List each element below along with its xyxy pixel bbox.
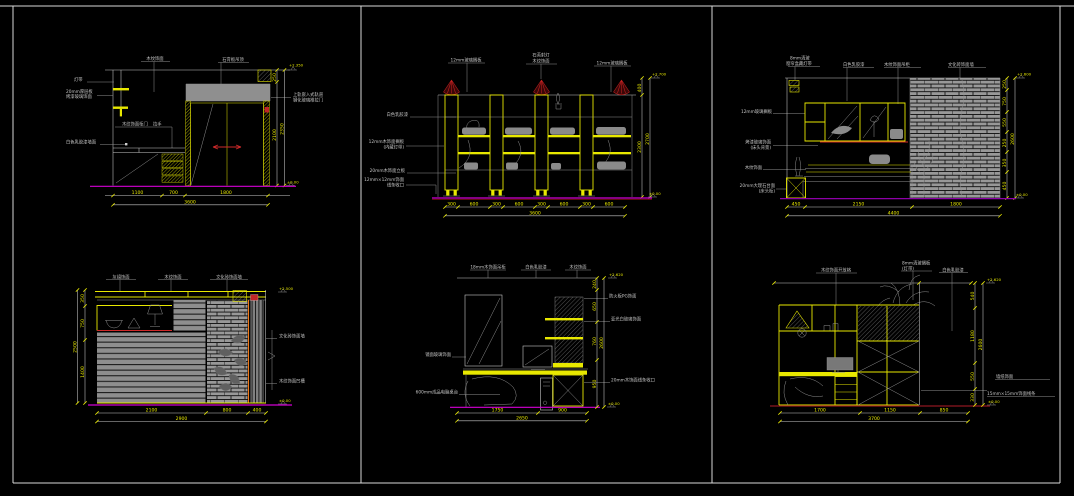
dimension-value: 1180 [970, 330, 976, 342]
annotation-label: 600mm成品电脑桌台 [416, 389, 458, 396]
level-mark: ±0.00 [287, 179, 299, 184]
dimension-total: 2650 [516, 415, 528, 421]
dimension-value: 400 [253, 408, 262, 414]
shelf-decor-items [459, 93, 626, 170]
dimension-total: 3600 [184, 199, 196, 205]
dimension-total: 4400 [888, 210, 900, 216]
dimension-total: 2500 [72, 341, 78, 353]
annotation-label: 木纹饰面凹槽 [279, 378, 305, 385]
annotation-label: 石英射灯 [532, 52, 550, 59]
annotation-label: 20mm木饰面线条收口 [611, 377, 655, 384]
monitor [827, 358, 853, 371]
level-mark-icon [286, 67, 297, 186]
slat-wall-upper [174, 300, 206, 331]
dimension-value: 550 [970, 372, 976, 381]
dimension-value: 1100 [132, 190, 144, 196]
annotation-label: 亚光白玻璃饰面 [611, 316, 642, 323]
dimension-value: 2300 [637, 141, 643, 153]
ceiling-detail-box [258, 70, 271, 82]
brick-column [207, 300, 248, 403]
dimension-value: 750 [1002, 97, 1008, 106]
annotation-label: 防火板PG饰面 [609, 293, 637, 300]
annotation-label: 木纹饰面吊柜 [884, 61, 910, 68]
curtain-box [790, 87, 799, 92]
annotation-label: 8mm清玻 [790, 55, 810, 62]
annotation-label: (床头柜) [759, 188, 776, 195]
dimension-value: 550 [1002, 118, 1008, 127]
dimension-value: 800 [223, 408, 232, 414]
dimension-value: 300 [492, 202, 501, 208]
dimension-total: 2600 [978, 339, 984, 351]
dimensions-right: 540 1180 550 330 2600 [970, 281, 985, 406]
elevation-panel-2: 400 2300 2700 +2.700 ±0.00 300 600 300 6… [364, 52, 667, 218]
dimension-value: 600 [515, 202, 524, 208]
shelf-board [113, 107, 128, 109]
dimensions-right: 400 2300 2700 [637, 76, 652, 198]
level-mark-icon [986, 280, 996, 405]
chair [784, 378, 823, 405]
slat-wall [97, 333, 206, 404]
dimensions-bottom: 1700 1150 850 3700 [778, 408, 969, 424]
annotation-label: 文化砖饰面墙 [216, 274, 242, 281]
overhead-cabinets [805, 103, 905, 141]
dimension-total: 2350 [279, 123, 285, 135]
dimension-value: 250 [1002, 80, 1008, 89]
annotation-label: 白色乳胶漆 [942, 267, 964, 274]
elevation-panel-1: 250 2100 2350 +2.350 ±0.00 1100 700 1800… [66, 55, 324, 207]
annotation-label: 拉手 [153, 121, 162, 128]
dimension-value: 700 [169, 190, 178, 196]
dimension-value: 760 [592, 337, 598, 346]
dimension-value: 600 [560, 202, 569, 208]
nightstand [787, 178, 806, 198]
level-mark: ±0.00 [1016, 192, 1028, 197]
dimension-total: 3600 [529, 210, 541, 216]
dimension-total: 2900 [176, 416, 188, 422]
level-mark: ±0.00 [649, 191, 661, 196]
dimension-value: 1400 [80, 366, 86, 378]
dimension-value: 1800 [950, 202, 962, 208]
elevation-panel-3: 250 750 550 250 350 450 2600 +2.600 ±0.0… [740, 55, 1032, 218]
vase-decor [795, 157, 803, 176]
level-mark: ±0.00 [279, 398, 291, 403]
annotation-label: 木纹饰面 [745, 164, 763, 171]
annotation-label: 12mm×12mm饰面 [364, 176, 405, 183]
level-mark-icon [1015, 75, 1025, 198]
dimension-value: 900 [558, 408, 567, 414]
dimension-value: 250 [272, 73, 278, 82]
cad-drawing-canvas: 250 2100 2350 +2.350 ±0.00 1100 700 1800… [0, 0, 1074, 496]
annotation-label: 20mm大理石台面 [740, 182, 776, 189]
dimension-value: 300 [582, 202, 591, 208]
annotation-label: 镜面玻璃饰面 [425, 351, 451, 358]
vertical-slat-panel [251, 300, 264, 403]
shelf-columns [443, 95, 595, 196]
annotation-label: 白色乳胶漆 [525, 264, 547, 271]
shelf-unit [779, 283, 920, 405]
dimensions-bottom: 2100 800 400 2900 [95, 408, 267, 424]
level-mark: +2.620 [609, 272, 624, 277]
annotation-label: 木纹饰面开放格 [821, 267, 852, 274]
mirror-panel [465, 295, 502, 366]
annotation-label: 18mm木饰面吊柜 [470, 264, 506, 271]
dimension-value: 850 [940, 408, 949, 414]
annotation-label: 12mm木饰面搁板 [369, 138, 405, 145]
annotation-label: 文化砖饰面墙 [948, 61, 974, 68]
chair [465, 377, 516, 406]
annotation-label: 20mm木饰面立板 [370, 167, 406, 174]
door-header [186, 84, 270, 101]
dimension-value: 450 [1002, 182, 1008, 191]
brick-feature-wall [910, 78, 1000, 198]
annotation-label: (内藏灯带) [383, 144, 404, 151]
desk-top [780, 372, 858, 376]
dimension-value: 300 [537, 202, 546, 208]
dimension-value: 2100 [272, 129, 278, 141]
spotlight-icons [444, 80, 630, 95]
dimensions-bottom: 1750 900 2650 [455, 408, 588, 423]
shelf-decor [786, 311, 809, 328]
level-mark: +2.350 [289, 63, 304, 68]
annotation-label: 烤漆玻璃饰面 [745, 139, 771, 146]
dimensions-right: 240 650 760 950 2600 [592, 276, 606, 408]
dimensions-right: 250 750 550 250 350 450 2600 [1002, 76, 1017, 199]
cad-sheet: 250 2100 2350 +2.350 ±0.00 1100 700 1800… [0, 0, 1074, 496]
annotation-label: 灰镜饰面 [112, 274, 130, 281]
dimension-value: 1700 [814, 408, 826, 414]
bed [795, 155, 912, 199]
dimension-value: 330 [970, 393, 976, 402]
wall-marker [125, 143, 127, 145]
display-niche [97, 305, 172, 331]
level-mark: +2.600 [1017, 72, 1032, 77]
dimension-value: 750 [80, 319, 86, 328]
annotation-label: 15mm×15mm饰面线条 [987, 390, 1036, 397]
dimension-value: 300 [447, 202, 456, 208]
level-mark-icon [278, 289, 287, 404]
plant-decor [878, 275, 935, 306]
annotation-label: 线条收口 [387, 182, 404, 189]
level-mark: +2.500 [279, 286, 294, 291]
sliding-door [186, 101, 270, 186]
annotation-label: (灯带) [902, 265, 914, 272]
dimension-total: 2600 [1010, 133, 1016, 145]
dimension-total: 2700 [645, 133, 651, 145]
level-mark: +2.700 [652, 72, 667, 77]
level-mark: ±0.00 [988, 399, 1000, 404]
annotation-label: 钢化玻璃推拉门 [293, 97, 323, 104]
ceiling-detail-box [233, 291, 247, 302]
pillow-decor [869, 155, 890, 165]
drawer-unit [835, 377, 857, 406]
annotation-label: 8mm清玻搁板 [902, 260, 931, 267]
dimension-value: 2150 [853, 202, 865, 208]
shelf-support [120, 109, 122, 117]
dimension-total: 2600 [599, 337, 605, 349]
annotation-label: 木纹饰面柜门 [122, 121, 148, 128]
annotation-label: (床头背景) [750, 144, 771, 151]
dimension-value: 950 [592, 380, 598, 389]
light-cove-detail [251, 295, 259, 301]
annotation-label: 白色乳胶漆 [387, 111, 409, 118]
annotation-label: 墙纸饰面 [996, 373, 1014, 380]
annotation-label: 12mm玻璃搁板 [596, 60, 628, 67]
annotation-label: 灯带 [74, 76, 83, 83]
annotation-label: 窗帘盒藏灯带 [786, 60, 812, 67]
annotation-label: 文化砖饰面墙 [279, 333, 305, 340]
dimension-total: 3700 [868, 416, 880, 422]
dimension-value: 350 [1002, 159, 1008, 168]
annotation-label: 木纹饰面 [146, 55, 164, 62]
viewport-frame [0, 6, 1074, 483]
dimensions-left: 350 750 1400 2500 [72, 288, 86, 404]
annotation-label: 12mm玻璃搁板 [741, 108, 773, 115]
dimension-value: 400 [637, 84, 643, 93]
dimensions-bottom: 1100 700 1800 3600 [105, 190, 290, 207]
statue-decor [555, 93, 562, 109]
dimension-value: 600 [605, 202, 614, 208]
annotation-label: 20mm厚层板 [66, 88, 93, 95]
curtain-box [789, 81, 799, 86]
dimension-value: 1750 [492, 408, 504, 414]
annotation-label: 木纹饰面 [532, 58, 550, 65]
annotation-label: 白色乳胶漆墙面 [66, 139, 97, 146]
annotation-label: 烤漆玻璃饰面 [66, 93, 92, 100]
elevation-panel-6: 540 1180 550 330 2600 +2.620 ±0.00 1700 … [770, 260, 1055, 424]
dimension-value: 350 [80, 294, 86, 303]
annotation-label: 木纹饰面 [569, 264, 587, 271]
level-mark: +2.620 [987, 277, 1002, 282]
door-track-detail [265, 107, 270, 113]
dimensions-bottom: 450 2150 1800 4400 [785, 202, 1001, 218]
annotation-label: 上轨嵌入式轨道 [293, 91, 324, 98]
glass-shelves [458, 135, 631, 154]
dimension-value: 1150 [884, 408, 896, 414]
elevation-panel-5: 240 650 760 950 2600 +2.620 ±0.00 1750 9… [416, 264, 655, 423]
dimension-value: 2100 [146, 408, 158, 414]
dimension-value: 1800 [220, 190, 232, 196]
dimension-value: 450 [792, 202, 801, 208]
computer-tower [541, 378, 553, 410]
dimension-value: 600 [470, 202, 479, 208]
annotation-label: 石膏板吊顶 [222, 56, 244, 63]
elevation-panel-4: +2.500 ±0.00 350 750 1400 2500 2100 800 … [72, 274, 305, 424]
dimension-value: 540 [970, 292, 976, 301]
annotation-label: 木纹饰面 [164, 274, 182, 281]
dimension-value: 240 [592, 280, 598, 289]
level-mark: ±0.00 [608, 401, 620, 406]
dimensions-bottom: 300 600 300 600 300 600 300 600 3600 [443, 202, 626, 218]
drawer-stack [162, 154, 183, 182]
shelf-board [113, 88, 129, 90]
annotation-label: 12mm玻璃搁板 [450, 57, 482, 64]
dimensions-right: 250 2100 2350 [272, 68, 286, 187]
annotations: 12mm玻璃搁板 石英射灯 木纹饰面 12mm玻璃搁板 白色乳胶漆 12mm木饰… [364, 52, 628, 189]
dimension-value: 250 [1002, 139, 1008, 148]
decor-hatch-panel [545, 297, 583, 368]
annotation-label: 白色乳胶漆 [843, 61, 865, 68]
dimension-value: 650 [592, 302, 598, 311]
annotations: 18mm木饰面吊柜 白色乳胶漆 木纹饰面 镜面玻璃饰面 600mm成品电脑桌台 … [416, 264, 655, 396]
